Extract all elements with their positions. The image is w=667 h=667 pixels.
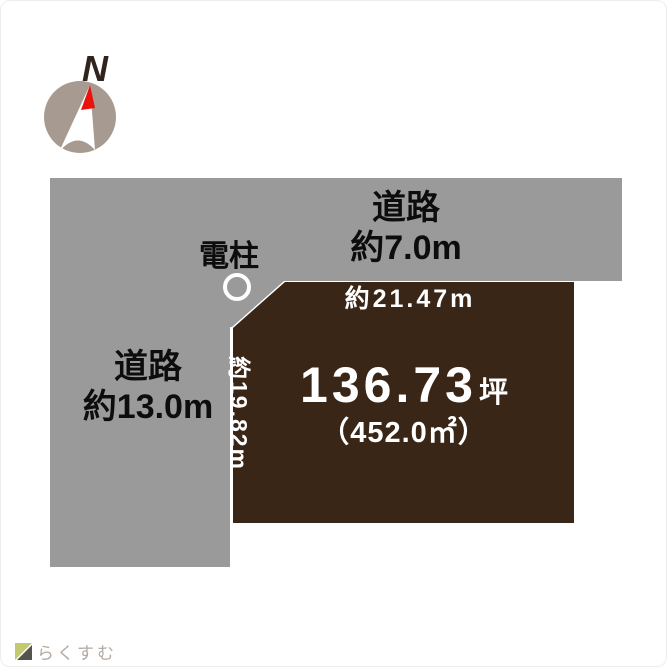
house-icon [15,643,32,660]
left-road-label: 道路 約13.0m [83,347,213,427]
plot-area-sqm: （452.0㎡） [320,409,488,451]
plot-area-tsubo: 136.73 坪 [300,356,508,414]
logo-text: らくすむ [37,639,117,664]
plot-frontage-dimension: 約21.47m [345,279,476,315]
plot-depth-dimension: 約19.82m [224,356,258,471]
plot-area-value: 136.73 [300,356,477,414]
plot-area-unit: 坪 [479,369,508,411]
site-plan-canvas: N 道路 約7.0m 道路 約13.0m 電柱 約21.47m 約19.82m … [0,0,667,667]
rakusumu-logo: らくすむ [15,639,117,664]
north-label: N [82,48,108,90]
site-plan-drawing [0,0,667,667]
utility-pole-label: 電柱 [199,231,259,275]
top-road-label: 道路 約7.0m [350,188,462,268]
top-road-width: 約7.0m [350,228,462,268]
left-road-name: 道路 [83,347,213,387]
left-road-width: 約13.0m [83,387,213,427]
compass-rose [44,81,116,153]
top-road-name: 道路 [350,188,462,228]
